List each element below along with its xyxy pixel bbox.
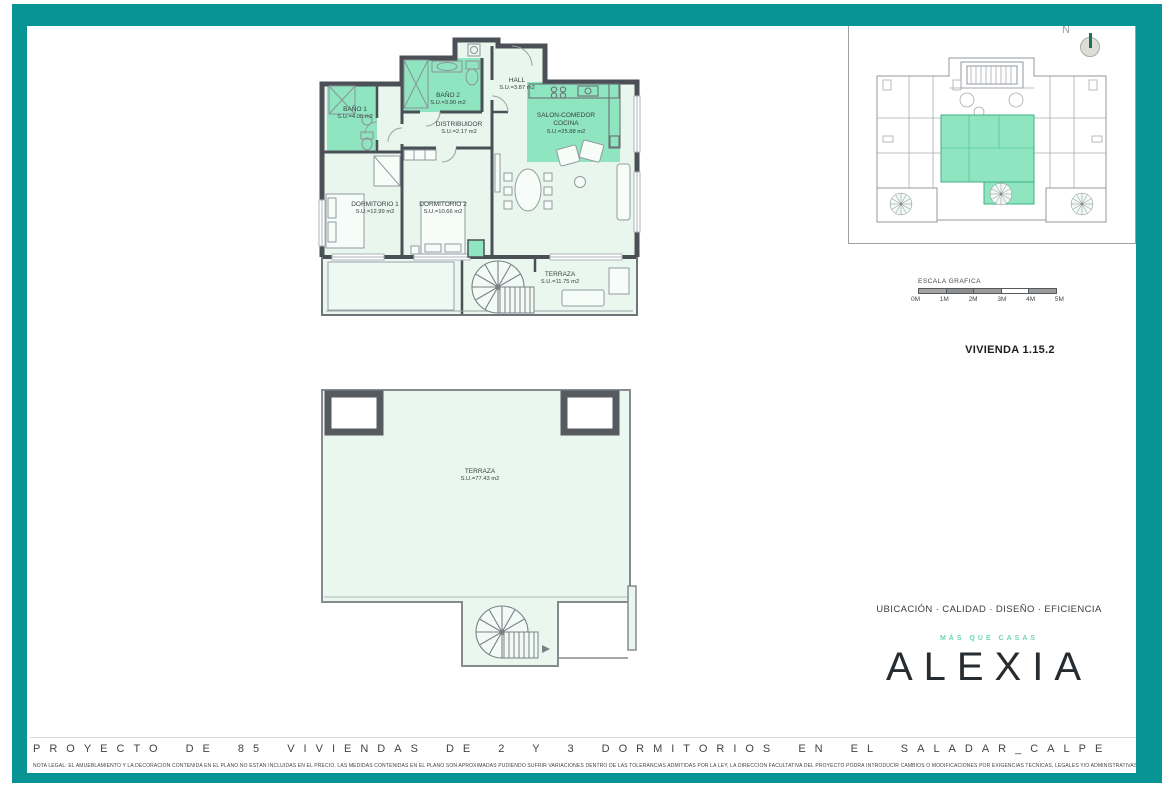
legal-note: NOTA LEGAL: EL AMUEBLAMIENTO Y LA DECORA… xyxy=(33,763,1137,769)
room-label-terraza: TERRAZA S.U.=11.75 m2 xyxy=(523,271,597,287)
apartment-floor-plan xyxy=(318,32,662,324)
pillar xyxy=(328,394,380,432)
room-label-dormitorio2: DORMITORIO 2 S.U.=10.66 m2 xyxy=(401,201,485,217)
unit-title: VIVIENDA 1.15.2 xyxy=(930,344,1090,356)
north-needle-icon xyxy=(1089,33,1092,48)
project-title: PROYECTO DE 85 VIVIENDAS DE 2 Y 3 DORMIT… xyxy=(33,743,1137,755)
pillar xyxy=(564,394,616,432)
north-label: N xyxy=(1062,24,1070,36)
scale-bar-labels: 0M 1M 2M 3M 4M 5M xyxy=(911,296,1064,303)
room-label-hall: HALL S.U.=3.87 m2 xyxy=(487,77,547,93)
brand-slogan: MÁS QUE CASAS xyxy=(858,635,1120,642)
brand-tagline: UBICACIÓN · CALIDAD · DISEÑO · EFICIENCI… xyxy=(858,604,1120,615)
scale-bar-title: ESCALA GRAFICA xyxy=(918,278,981,285)
room-label-bano2: BAÑO 2 S.U.=3.90 m2 xyxy=(415,92,481,108)
scale-bar xyxy=(918,288,1057,294)
plan-sheet: { "colors":{"frame_teal":"#089394","room… xyxy=(0,0,1170,785)
room-label-roof-terraza: TERRAZA S.U.=77.43 m2 xyxy=(438,468,522,484)
room-label-salon-cocina: SALON-COMEDOR COCINA S.U.=25.88 m2 xyxy=(524,112,608,136)
room-label-distribuidor: DISTRIBUIDOR S.U.=2.17 m2 xyxy=(422,121,496,137)
roof-terrace-plan xyxy=(312,380,657,680)
brand-logo: ALEXIA xyxy=(852,645,1126,690)
footer-divider xyxy=(30,737,1136,738)
room-label-bano1: BAÑO 1 S.U.=4.08 m2 xyxy=(322,106,388,122)
